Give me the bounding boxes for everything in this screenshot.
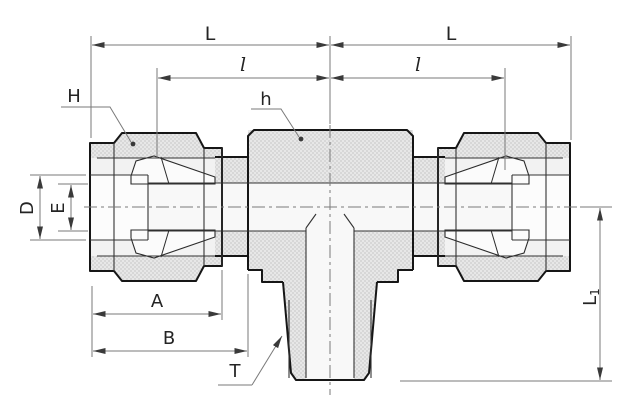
tee-fitting-drawing: L L l l H h D E A B T L1: [0, 0, 629, 412]
leader-T-arrow: [252, 336, 282, 385]
dim-label-L1-sub: 1: [588, 288, 602, 296]
dim-label-L1-main: L: [580, 296, 601, 306]
dim-label-E: E: [48, 202, 69, 213]
dim-label-l-left: l: [240, 54, 246, 76]
dim-label-A: A: [151, 291, 164, 312]
technical-drawing-page: L L l l H h D E A B T L1: [0, 0, 629, 412]
L-extension-lines: [91, 36, 571, 140]
dim-label-l-right: l: [415, 54, 421, 76]
dim-label-L-left: L: [205, 23, 216, 45]
dim-label-h: h: [260, 89, 271, 110]
dim-label-L1: L1: [580, 288, 602, 306]
dim-label-D: D: [17, 201, 38, 215]
dim-label-L-right: L: [446, 23, 457, 45]
dim-label-B: B: [163, 328, 175, 349]
dim-label-H: H: [67, 86, 81, 107]
dim-label-T: T: [229, 361, 242, 382]
leader-dot-h: [299, 137, 304, 142]
leader-dot-H: [131, 142, 136, 147]
